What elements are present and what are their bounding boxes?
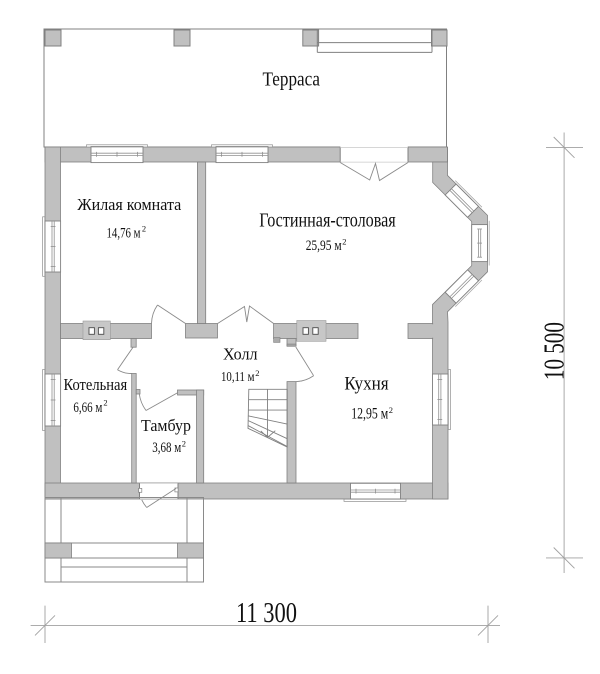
svg-text:Терраса: Терраса bbox=[263, 69, 321, 91]
svg-text:14,76 м: 14,76 м bbox=[107, 225, 141, 241]
svg-text:11 300: 11 300 bbox=[236, 598, 297, 629]
svg-text:2: 2 bbox=[342, 236, 346, 246]
svg-text:10 500: 10 500 bbox=[539, 322, 570, 380]
svg-text:6,66 м: 6,66 м bbox=[73, 400, 102, 416]
svg-text:Тамбур: Тамбур bbox=[141, 416, 191, 435]
svg-text:2: 2 bbox=[103, 398, 107, 408]
svg-text:2: 2 bbox=[389, 405, 393, 415]
svg-text:Котельная: Котельная bbox=[64, 375, 128, 394]
svg-text:2: 2 bbox=[182, 439, 186, 449]
svg-text:25,95 м: 25,95 м bbox=[306, 238, 342, 254]
svg-text:3,68 м: 3,68 м bbox=[152, 440, 181, 456]
svg-text:2: 2 bbox=[142, 224, 146, 234]
svg-text:Холл: Холл bbox=[223, 345, 258, 364]
svg-text:Кухня: Кухня bbox=[344, 373, 389, 394]
svg-text:10,11 м: 10,11 м bbox=[221, 370, 255, 385]
svg-text:12,95 м: 12,95 м bbox=[351, 406, 388, 423]
svg-text:Гостинная-столовая: Гостинная-столовая bbox=[259, 210, 395, 232]
svg-text:2: 2 bbox=[255, 368, 259, 378]
svg-text:Жилая комната: Жилая комната bbox=[77, 195, 181, 214]
